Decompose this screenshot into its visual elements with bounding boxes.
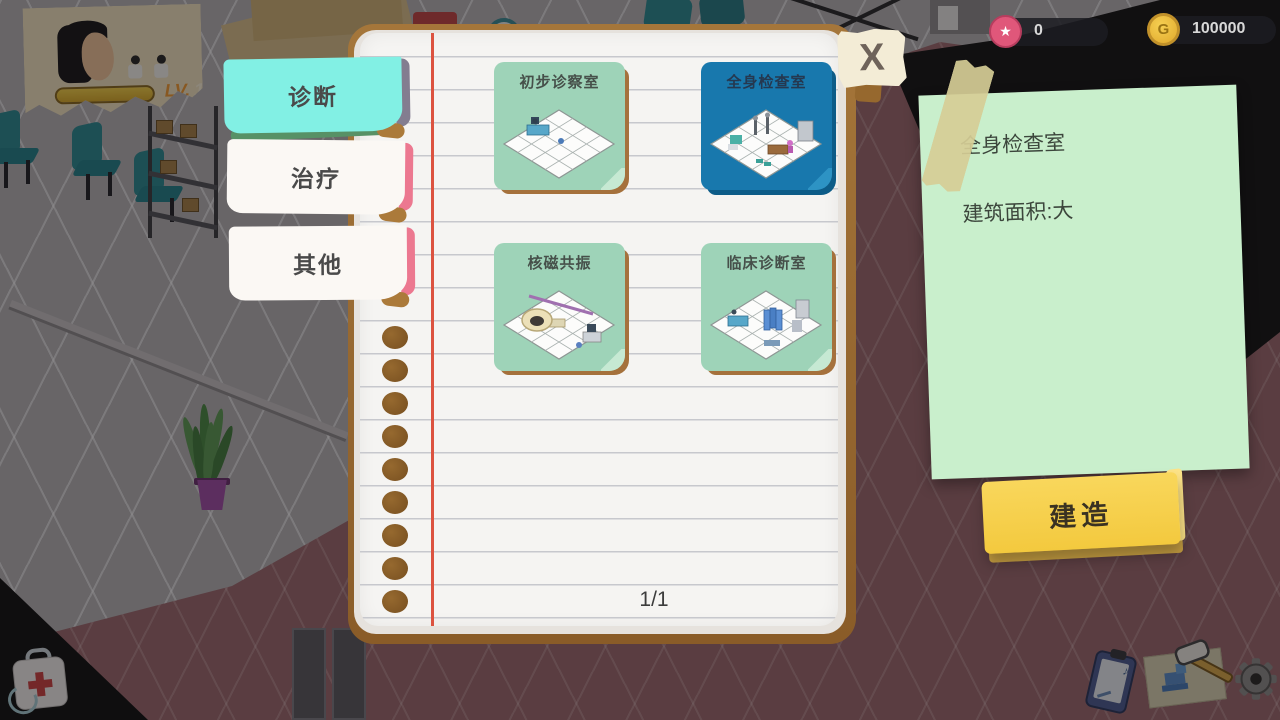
punch-hole	[382, 491, 408, 514]
star-currency-icon: ★	[989, 15, 1022, 48]
margin-line	[431, 33, 434, 626]
punch-hole	[382, 590, 408, 613]
tab-diagnosis[interactable]: 诊断	[223, 56, 414, 133]
room-card-title: 全身检查室	[701, 71, 832, 92]
punch-hole	[382, 392, 408, 415]
room-illustration	[501, 285, 617, 363]
tab-label: 诊断	[223, 57, 402, 134]
coin-icon: G	[1147, 13, 1180, 46]
room-card-mri[interactable]: 核磁共振	[494, 243, 625, 371]
punch-hole	[382, 359, 408, 382]
tab-label: 治疗	[227, 139, 406, 215]
punch-hole	[382, 524, 408, 547]
tab-other[interactable]: 其他	[229, 225, 420, 300]
build-button[interactable]: 建造	[981, 472, 1180, 554]
detail-area-info: 建筑面积:大	[962, 194, 1074, 228]
close-x-icon: X	[859, 36, 886, 80]
room-illustration	[708, 104, 824, 182]
punch-hole	[382, 557, 408, 580]
punch-hole	[382, 425, 408, 448]
room-card-full-body-exam[interactable]: 全身检查室	[701, 62, 832, 190]
stars-value: 0	[1034, 22, 1043, 40]
stars-currency-badge: ★ 0	[992, 18, 1108, 46]
room-card-initial-exam[interactable]: 初步诊察室	[494, 62, 625, 190]
close-button[interactable]: X	[837, 28, 907, 88]
room-card-title: 核磁共振	[494, 252, 625, 273]
page-indicator: 1/1	[470, 588, 838, 612]
room-card-clinical-diagnosis[interactable]: 临床诊断室	[701, 243, 832, 371]
coins-value: 100000	[1192, 20, 1245, 38]
notebook-page: 初步诊察室 全身检查室	[360, 33, 838, 626]
coins-currency-badge: G 100000	[1150, 16, 1276, 44]
tab-label: 其他	[229, 225, 408, 300]
room-card-title: 初步诊察室	[494, 71, 625, 92]
room-illustration	[708, 285, 824, 363]
game-screen: LV.1 ♪ ★ 0 G	[0, 0, 1280, 720]
room-card-title: 临床诊断室	[701, 252, 832, 273]
tab-treatment[interactable]: 治疗	[227, 139, 418, 215]
room-illustration	[501, 104, 617, 182]
build-button-label: 建造	[981, 472, 1180, 554]
punch-hole	[382, 326, 408, 349]
punch-hole	[382, 458, 408, 481]
